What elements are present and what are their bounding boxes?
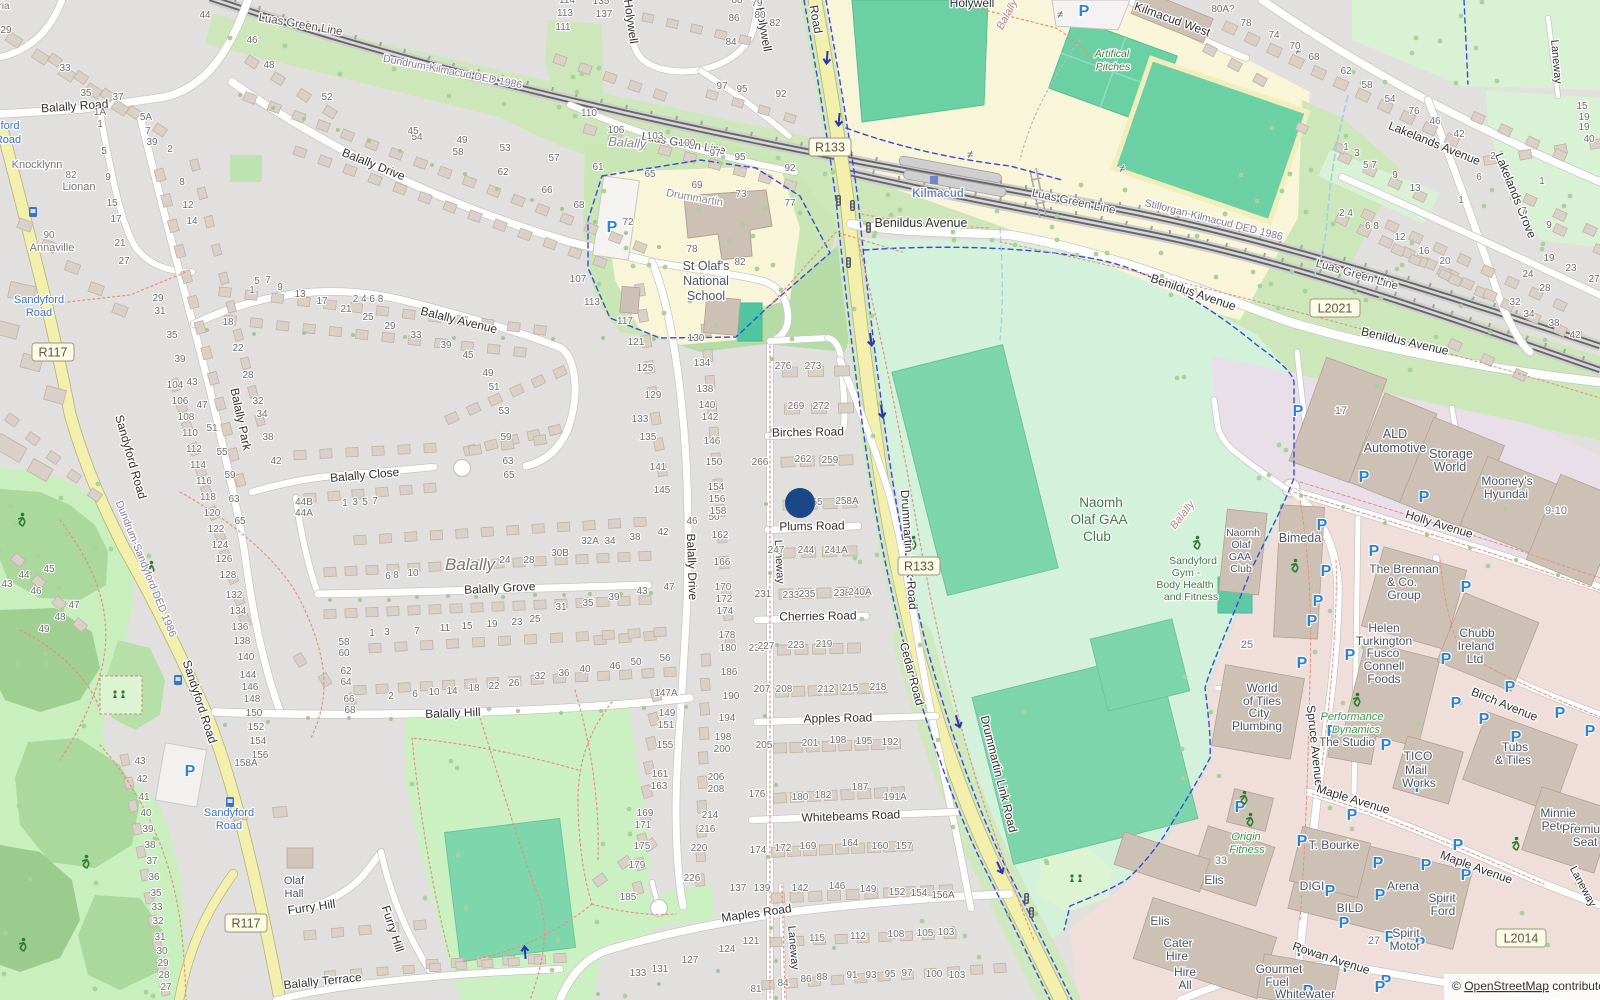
svg-text:37: 37 <box>112 92 124 103</box>
svg-text:79: 79 <box>751 0 763 9</box>
svg-text:P: P <box>1373 855 1384 872</box>
svg-text:27: 27 <box>160 982 172 993</box>
svg-text:58: 58 <box>452 147 464 158</box>
svg-text:38: 38 <box>629 532 641 543</box>
svg-text:Premium: Premium <box>1562 822 1600 836</box>
svg-text:164: 164 <box>842 838 859 849</box>
svg-text:135: 135 <box>593 0 610 7</box>
svg-text:1A: 1A <box>94 107 107 118</box>
svg-text:80A?: 80A? <box>1211 4 1235 15</box>
svg-text:1: 1 <box>342 498 348 509</box>
svg-text:40: 40 <box>579 664 591 675</box>
svg-text:86: 86 <box>800 974 812 985</box>
svg-text:207: 207 <box>754 684 771 695</box>
svg-text:107: 107 <box>570 274 587 285</box>
svg-text:13: 13 <box>1409 183 1421 194</box>
svg-text:R133: R133 <box>815 141 845 155</box>
svg-text:149: 149 <box>659 708 676 719</box>
svg-text:180: 180 <box>720 643 737 654</box>
svg-text:72: 72 <box>622 217 634 228</box>
svg-text:Hall: Hall <box>285 888 304 900</box>
svg-text:90: 90 <box>43 230 55 241</box>
svg-text:47: 47 <box>68 600 80 611</box>
svg-text:174: 174 <box>717 606 734 617</box>
svg-text:Spirit: Spirit <box>1428 891 1456 905</box>
svg-text:195: 195 <box>856 736 873 747</box>
svg-text:152: 152 <box>248 722 265 733</box>
svg-text:Performance: Performance <box>1321 711 1384 723</box>
svg-text:31: 31 <box>555 602 567 613</box>
svg-text:110: 110 <box>581 108 597 119</box>
svg-text:P: P <box>1325 883 1336 900</box>
svg-text:23: 23 <box>511 617 523 628</box>
svg-text:Automotive: Automotive <box>1364 441 1427 455</box>
svg-text:2 4: 2 4 <box>1339 208 1353 219</box>
svg-text:P: P <box>1451 695 1462 712</box>
svg-text:Road: Road <box>0 134 21 146</box>
svg-text:17: 17 <box>1335 405 1347 417</box>
svg-text:27: 27 <box>1588 274 1600 285</box>
svg-text:156A: 156A <box>931 890 955 901</box>
svg-text:Cherries Road: Cherries Road <box>779 608 857 623</box>
svg-text:158A: 158A <box>234 758 258 769</box>
svg-text:44A: 44A <box>295 508 313 519</box>
svg-text:155: 155 <box>657 740 674 751</box>
svg-text:Apples Road: Apples Road <box>803 710 872 725</box>
svg-text:28: 28 <box>242 370 254 381</box>
svg-text:138: 138 <box>697 384 714 395</box>
svg-text:161: 161 <box>652 769 669 780</box>
svg-text:145: 145 <box>654 485 671 496</box>
svg-text:P: P <box>1505 679 1516 696</box>
svg-text:3: 3 <box>1354 148 1360 159</box>
svg-text:149: 149 <box>860 884 877 895</box>
svg-text:P: P <box>1381 737 1392 754</box>
svg-text:235: 235 <box>799 589 816 600</box>
svg-text:70: 70 <box>1289 41 1301 52</box>
svg-text:Plumbing: Plumbing <box>1232 719 1282 733</box>
svg-text:ford: ford <box>1 120 20 132</box>
svg-text:142: 142 <box>702 412 719 423</box>
svg-text:3: 3 <box>384 627 390 638</box>
svg-text:Elis: Elis <box>1150 914 1169 928</box>
svg-text:64: 64 <box>340 677 352 688</box>
svg-text:Balally: Balally <box>608 134 649 152</box>
svg-text:9: 9 <box>277 282 283 293</box>
svg-text:Naomh: Naomh <box>1079 495 1123 510</box>
svg-text:108: 108 <box>888 929 905 940</box>
svg-text:1: 1 <box>369 628 375 639</box>
svg-text:244: 244 <box>798 545 815 556</box>
svg-text:171: 171 <box>635 820 652 831</box>
svg-text:205: 205 <box>756 740 773 751</box>
svg-text:187: 187 <box>852 782 869 793</box>
svg-text:BILD: BILD <box>1337 901 1364 915</box>
svg-text:42: 42 <box>1453 129 1465 140</box>
svg-text:133: 133 <box>630 968 647 979</box>
svg-text:P: P <box>1313 593 1324 610</box>
svg-text:50: 50 <box>630 657 642 668</box>
svg-text:43: 43 <box>186 377 198 388</box>
svg-text:26: 26 <box>508 678 520 689</box>
svg-text:≠: ≠ <box>967 149 973 161</box>
svg-text:170: 170 <box>715 582 732 593</box>
svg-text:1: 1 <box>97 119 103 130</box>
svg-text:88: 88 <box>816 972 828 983</box>
svg-text:Balally Drive: Balally Drive <box>684 533 700 600</box>
svg-text:68: 68 <box>573 200 585 211</box>
svg-text:Foods: Foods <box>1367 672 1400 686</box>
svg-text:160: 160 <box>872 841 889 852</box>
svg-text:198: 198 <box>830 735 847 746</box>
svg-text:179: 179 <box>629 860 646 871</box>
svg-text:61: 61 <box>592 162 604 173</box>
svg-text:126: 126 <box>216 554 233 565</box>
svg-text:200: 200 <box>714 744 731 755</box>
svg-text:54: 54 <box>1384 94 1396 105</box>
svg-text:43: 43 <box>1 579 13 590</box>
svg-text:97: 97 <box>901 968 913 979</box>
svg-text:220: 220 <box>691 843 708 854</box>
svg-text:58: 58 <box>1361 80 1373 91</box>
svg-text:140: 140 <box>238 652 255 663</box>
svg-text:190: 190 <box>723 691 740 702</box>
svg-text:60: 60 <box>338 648 350 659</box>
svg-text:P: P <box>607 219 618 236</box>
svg-text:TICO: TICO <box>1404 749 1433 763</box>
svg-text:39: 39 <box>440 340 452 351</box>
svg-text:ria: ria <box>0 1 10 12</box>
svg-text:Ford: Ford <box>1431 904 1456 918</box>
svg-text:St Olaf's: St Olaf's <box>683 259 730 273</box>
svg-text:2: 2 <box>167 144 173 155</box>
svg-text:56: 56 <box>659 653 671 664</box>
svg-text:137: 137 <box>596 9 613 20</box>
svg-text:118: 118 <box>200 492 216 503</box>
svg-text:169: 169 <box>637 808 654 819</box>
svg-text:Plums Road: Plums Road <box>779 518 845 533</box>
svg-text:180: 180 <box>792 792 809 803</box>
svg-text:74: 74 <box>1268 30 1280 41</box>
svg-text:223: 223 <box>788 640 805 651</box>
svg-text:82: 82 <box>734 257 746 268</box>
svg-text:Group: Group <box>1387 588 1421 602</box>
svg-text:36: 36 <box>558 668 570 679</box>
svg-text:62: 62 <box>340 666 352 677</box>
svg-text:49: 49 <box>456 135 468 146</box>
svg-text:39: 39 <box>142 824 154 835</box>
svg-text:115: 115 <box>809 933 825 944</box>
svg-text:5: 5 <box>254 276 260 287</box>
svg-text:49: 49 <box>38 624 50 635</box>
svg-text:46: 46 <box>30 586 42 597</box>
svg-text:140: 140 <box>699 400 716 411</box>
svg-text:Club: Club <box>1230 563 1252 575</box>
svg-text:49: 49 <box>482 368 494 379</box>
svg-text:142: 142 <box>792 883 809 894</box>
svg-text:25: 25 <box>529 614 541 625</box>
svg-text:World: World <box>1434 460 1466 474</box>
svg-text:Bimeda: Bimeda <box>1279 531 1321 545</box>
svg-text:28: 28 <box>523 555 535 566</box>
svg-text:T. Bourke: T. Bourke <box>1309 838 1360 852</box>
svg-text:154: 154 <box>250 736 267 747</box>
svg-text:2: 2 <box>1490 151 1496 162</box>
svg-text:Olaf GAA: Olaf GAA <box>1070 512 1127 527</box>
svg-text:104: 104 <box>167 380 184 391</box>
svg-text:Mail: Mail <box>1405 763 1427 777</box>
svg-text:P: P <box>1419 489 1430 506</box>
svg-text:150: 150 <box>246 708 263 719</box>
svg-text:68: 68 <box>344 705 356 716</box>
svg-text:& Tiles: & Tiles <box>1495 753 1531 767</box>
svg-text:157: 157 <box>896 841 913 852</box>
svg-text:27: 27 <box>1368 935 1380 947</box>
svg-text:206: 206 <box>708 772 725 783</box>
svg-text:35: 35 <box>80 88 92 99</box>
svg-text:Helen: Helen <box>1368 621 1399 635</box>
svg-text:35: 35 <box>582 598 594 609</box>
svg-text:35: 35 <box>150 888 162 899</box>
svg-text:≠: ≠ <box>1057 9 1063 21</box>
svg-text:132: 132 <box>226 590 243 601</box>
svg-text:97: 97 <box>709 148 721 159</box>
svg-text:33: 33 <box>151 902 163 913</box>
svg-text:46: 46 <box>1429 116 1441 127</box>
svg-text:Fitness: Fitness <box>1229 844 1265 856</box>
svg-text:240A: 240A <box>848 587 872 598</box>
svg-text:59: 59 <box>224 470 236 481</box>
svg-text:69: 69 <box>691 180 703 191</box>
svg-text:20: 20 <box>1439 256 1451 267</box>
svg-text:9: 9 <box>1392 170 1398 181</box>
svg-text:58: 58 <box>338 637 350 648</box>
svg-text:32: 32 <box>152 916 164 927</box>
svg-text:44: 44 <box>199 10 211 21</box>
svg-text:ALD: ALD <box>1383 427 1407 441</box>
svg-text:44B: 44B <box>295 497 313 508</box>
svg-text:32: 32 <box>252 396 264 407</box>
svg-text:Arena: Arena <box>1387 879 1419 893</box>
svg-text:31: 31 <box>154 932 166 943</box>
svg-text:Balally: Balally <box>445 555 497 574</box>
svg-text:13: 13 <box>294 289 306 300</box>
svg-text:40: 40 <box>1583 134 1595 145</box>
svg-text:122: 122 <box>208 524 225 535</box>
svg-text:Hire: Hire <box>1166 949 1188 963</box>
svg-text:and Fitness: and Fitness <box>1164 591 1218 603</box>
svg-text:53: 53 <box>498 406 510 417</box>
svg-text:62: 62 <box>1340 66 1352 77</box>
svg-text:68: 68 <box>1308 52 1320 63</box>
svg-text:103: 103 <box>949 970 966 981</box>
svg-text:134: 134 <box>230 606 247 617</box>
svg-text:P: P <box>1293 403 1304 420</box>
svg-text:P: P <box>1585 723 1596 740</box>
svg-text:59: 59 <box>500 432 512 443</box>
svg-text:216: 216 <box>699 824 716 835</box>
svg-text:111: 111 <box>555 22 571 33</box>
svg-text:38: 38 <box>1548 318 1560 329</box>
svg-text:201: 201 <box>802 738 819 749</box>
svg-text:19: 19 <box>1578 112 1590 123</box>
svg-text:121: 121 <box>743 936 760 947</box>
svg-text:P: P <box>1441 651 1452 668</box>
svg-text:39: 39 <box>174 354 186 365</box>
svg-text:116: 116 <box>196 476 212 487</box>
svg-text:P: P <box>1321 563 1332 580</box>
svg-text:163: 163 <box>651 781 668 792</box>
svg-text:78: 78 <box>1240 18 1252 29</box>
svg-text:227: 227 <box>758 641 775 652</box>
svg-text:81: 81 <box>750 984 762 995</box>
svg-text:52: 52 <box>321 92 333 103</box>
svg-text:97: 97 <box>716 81 728 92</box>
svg-text:34: 34 <box>604 536 616 547</box>
svg-text:136: 136 <box>232 622 249 633</box>
svg-text:P: P <box>1461 579 1472 596</box>
svg-text:198: 198 <box>715 732 732 743</box>
svg-text:269: 269 <box>788 401 805 412</box>
svg-text:247: 247 <box>768 545 785 556</box>
svg-text:80: 80 <box>754 10 766 21</box>
svg-text:41: 41 <box>138 792 150 803</box>
svg-text:L2014: L2014 <box>1504 932 1539 946</box>
svg-text:19: 19 <box>1543 253 1555 264</box>
svg-text:Seat: Seat <box>1573 835 1598 849</box>
svg-text:166: 166 <box>714 557 731 568</box>
svg-text:28: 28 <box>1539 283 1551 294</box>
svg-text:P: P <box>1339 915 1350 932</box>
svg-text:8: 8 <box>393 570 399 581</box>
svg-text:148: 148 <box>244 694 261 705</box>
svg-text:141: 141 <box>650 462 667 473</box>
svg-text:127: 127 <box>682 955 699 966</box>
svg-text:Balally Hill: Balally Hill <box>425 705 481 721</box>
svg-text:5A: 5A <box>140 112 153 123</box>
svg-text:Fusco: Fusco <box>1367 646 1400 660</box>
svg-text:154: 154 <box>708 482 725 493</box>
svg-text:L2021: L2021 <box>1318 302 1353 316</box>
svg-text:29: 29 <box>152 293 164 304</box>
svg-text:185: 185 <box>620 892 637 903</box>
svg-text:Gourmet: Gourmet <box>1256 962 1303 976</box>
svg-text:5 7: 5 7 <box>1363 160 1377 171</box>
svg-text:46: 46 <box>609 661 621 672</box>
svg-text:23: 23 <box>1565 263 1577 274</box>
svg-text:6: 6 <box>385 571 391 582</box>
svg-text:25: 25 <box>362 312 374 323</box>
svg-text:6: 6 <box>412 689 418 700</box>
svg-text:48: 48 <box>54 612 66 623</box>
svg-text:2: 2 <box>388 691 394 702</box>
svg-text:Works: Works <box>1402 776 1436 790</box>
svg-text:106: 106 <box>172 396 189 407</box>
svg-text:21: 21 <box>114 238 126 249</box>
svg-text:124: 124 <box>719 944 736 955</box>
svg-text:135: 135 <box>640 432 657 443</box>
svg-text:7: 7 <box>1521 206 1527 217</box>
svg-text:7: 7 <box>145 126 151 137</box>
svg-text:≠: ≠ <box>1119 163 1125 175</box>
svg-text:39: 39 <box>146 137 158 148</box>
svg-text:25: 25 <box>1241 639 1253 651</box>
svg-text:150: 150 <box>706 457 723 468</box>
svg-text:33: 33 <box>59 63 71 74</box>
svg-text:42: 42 <box>136 774 148 785</box>
svg-text:7: 7 <box>372 496 378 507</box>
svg-text:175: 175 <box>634 841 651 852</box>
svg-text:9: 9 <box>105 172 111 183</box>
svg-text:194: 194 <box>719 713 736 724</box>
svg-text:113: 113 <box>557 8 573 19</box>
svg-text:226: 226 <box>684 873 701 884</box>
svg-text:9-10: 9-10 <box>1545 505 1567 517</box>
svg-text:17: 17 <box>110 214 122 225</box>
svg-text:Cater: Cater <box>1163 936 1192 950</box>
svg-text:P: P <box>1375 979 1386 996</box>
svg-text:15: 15 <box>461 621 473 632</box>
svg-text:139: 139 <box>754 883 771 894</box>
svg-text:146: 146 <box>829 881 846 892</box>
svg-text:12: 12 <box>1394 232 1406 243</box>
svg-text:48: 48 <box>263 60 275 71</box>
svg-text:32: 32 <box>1509 297 1521 308</box>
svg-text:The Brennan: The Brennan <box>1369 562 1438 576</box>
svg-text:110: 110 <box>182 428 198 439</box>
svg-text:30: 30 <box>156 946 168 957</box>
svg-text:19: 19 <box>1578 122 1590 133</box>
svg-text:Motor: Motor <box>1390 939 1421 953</box>
svg-text:82: 82 <box>65 170 77 181</box>
svg-text:63: 63 <box>502 456 514 467</box>
svg-text:P: P <box>1235 799 1246 816</box>
svg-text:63: 63 <box>228 494 240 505</box>
svg-text:Club: Club <box>1083 529 1111 544</box>
svg-text:46: 46 <box>246 35 258 46</box>
svg-text:86: 86 <box>728 13 740 24</box>
svg-text:95: 95 <box>734 152 746 163</box>
svg-text:Gym -: Gym - <box>1172 567 1201 579</box>
svg-text:Pitches: Pitches <box>1096 61 1131 73</box>
svg-text:34: 34 <box>1523 309 1535 320</box>
svg-text:Road: Road <box>216 820 242 832</box>
svg-text:55: 55 <box>216 447 228 458</box>
svg-text:24: 24 <box>499 555 511 566</box>
svg-text:131: 131 <box>652 964 669 975</box>
svg-text:Ireland: Ireland <box>1458 639 1495 653</box>
svg-text:65: 65 <box>503 470 515 481</box>
svg-text:51: 51 <box>206 423 218 434</box>
svg-text:156: 156 <box>709 494 726 505</box>
svg-text:P: P <box>1297 655 1308 672</box>
svg-text:191A: 191A <box>883 792 907 803</box>
svg-text:The Studio: The Studio <box>1319 737 1375 749</box>
svg-text:Elis: Elis <box>1204 873 1223 887</box>
svg-text:Chubb: Chubb <box>1459 626 1495 640</box>
svg-text:39: 39 <box>608 592 620 603</box>
svg-text:Annaville: Annaville <box>30 242 75 254</box>
svg-text:All: All <box>1178 978 1191 992</box>
svg-text:78: 78 <box>686 244 698 255</box>
svg-text:105: 105 <box>917 928 934 939</box>
svg-text:178: 178 <box>719 630 736 641</box>
svg-text:15: 15 <box>106 198 118 209</box>
svg-text:GAA: GAA <box>1229 551 1251 563</box>
svg-text:Hyundai: Hyundai <box>1484 487 1528 501</box>
svg-text:186: 186 <box>721 667 738 678</box>
svg-text:Whitewater: Whitewater <box>1275 987 1335 1000</box>
